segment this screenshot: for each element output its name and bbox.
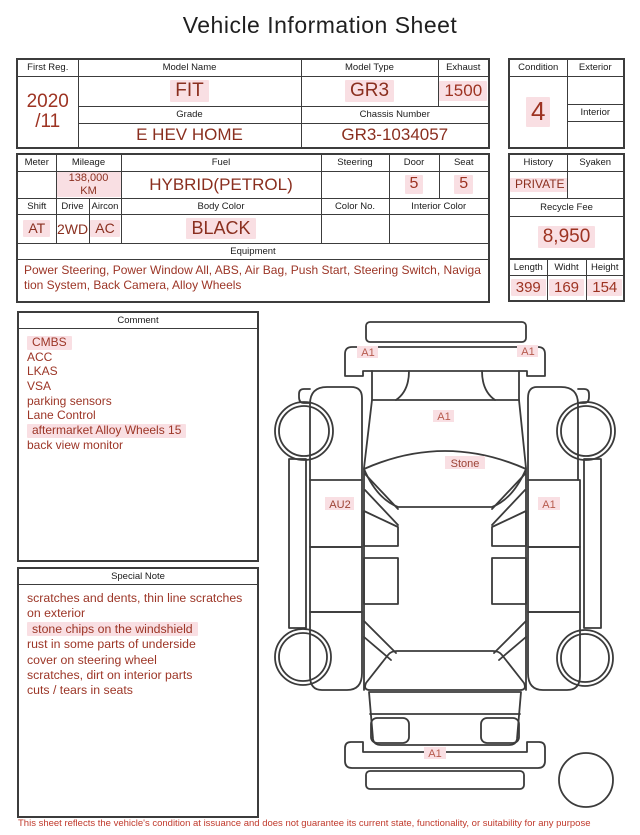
front-door-left	[310, 480, 362, 547]
aircon-value: AC	[89, 214, 121, 243]
wheel-rear-left-inner	[279, 633, 327, 681]
length-label: Length	[509, 259, 547, 275]
front-fender-right	[528, 387, 578, 480]
length-value: 399	[509, 275, 547, 301]
wheel-rear-left	[275, 629, 331, 685]
special-note-header: Special Note	[19, 569, 257, 585]
model-type-label: Model Type	[301, 59, 438, 76]
width-label: Widht	[547, 259, 586, 275]
headlight-left	[396, 371, 409, 400]
comment-item: Lane Control	[27, 408, 249, 423]
steering-value-empty	[321, 171, 389, 198]
exterior-label: Exterior	[567, 59, 624, 76]
rocker-right	[584, 459, 601, 628]
first-reg-year: 2020	[18, 92, 78, 112]
wheel-front-left	[275, 402, 333, 460]
front-door-right	[528, 480, 580, 547]
rear-door-right	[528, 547, 580, 612]
rear-door-left	[310, 547, 362, 612]
meter-value-empty	[17, 171, 56, 198]
fuel-label: Fuel	[121, 154, 321, 171]
c-pillar-left	[364, 621, 396, 660]
recycle-fee-value: 8,950	[509, 216, 624, 259]
special-note-item: scratches and dents, thin line scratches…	[27, 591, 249, 622]
wheel-front-right-inner	[561, 406, 611, 456]
comment-item: VSA	[27, 379, 249, 394]
special-note-item: cover on steering wheel	[27, 653, 249, 668]
hood	[372, 371, 519, 400]
width-value: 169	[547, 275, 586, 301]
body-color-value: BLACK	[121, 214, 321, 243]
grade-label: Grade	[78, 106, 301, 123]
vehicle-id-table: First Reg. Model Name Model Type Exhaust…	[16, 58, 490, 149]
mirror-left	[299, 389, 310, 403]
special-note-item: cuts / tears in seats	[27, 683, 249, 698]
color-no-value-empty	[321, 214, 389, 243]
taillight-left	[371, 718, 409, 743]
seat-value: 5	[439, 171, 489, 198]
wheel-front-left-inner	[279, 406, 329, 456]
syaken-value-empty	[567, 171, 624, 198]
model-type-value: GR3	[301, 76, 438, 106]
special-note-item: scratches, dirt on interior parts	[27, 668, 249, 683]
comment-box: Comment CMBS ACC LKAS VSA parking sensor…	[17, 311, 259, 562]
door-value: 5	[389, 171, 439, 198]
grade-value: E HEV HOME	[78, 123, 301, 148]
body-color-label: Body Color	[121, 198, 321, 214]
first-reg-value: 2020 /11	[17, 76, 78, 148]
special-note-item: stone chips on the windshield	[27, 622, 249, 637]
special-note-box: Special Note scratches and dents, thin l…	[17, 567, 259, 818]
equipment-value-cell: Power Steering, Power Window All, ABS, A…	[17, 259, 489, 302]
comment-item: CMBS	[27, 335, 249, 350]
interior-label: Interior	[567, 104, 624, 121]
first-reg-label: First Reg.	[17, 59, 78, 76]
c-pillar-right	[494, 621, 526, 660]
spec-table: Meter Mileage Fuel Steering Door Seat 13…	[16, 153, 490, 303]
color-no-label: Color No.	[321, 198, 389, 214]
rear-plate-strip	[366, 771, 524, 789]
rear-window-right	[492, 558, 526, 604]
model-name-label: Model Name	[78, 59, 301, 76]
comment-item: ACC	[27, 350, 249, 365]
first-reg-month: /11	[18, 112, 78, 132]
shift-label: Shift	[17, 198, 56, 214]
meter-label: Meter	[17, 154, 56, 171]
condition-value: 4	[509, 76, 567, 148]
interior-color-value-empty	[389, 214, 489, 243]
aircon-label: Aircon	[89, 198, 121, 214]
front-fender-left	[310, 387, 362, 480]
comment-item: back view monitor	[27, 438, 249, 453]
equipment-value: Power Steering, Power Window All, ABS, A…	[18, 260, 488, 297]
syaken-label: Syaken	[567, 154, 624, 171]
front-window-left	[364, 511, 398, 546]
disclaimer-text: This sheet reflects the vehicle's condit…	[18, 818, 633, 829]
taillight-right	[481, 718, 519, 743]
equipment-label: Equipment	[17, 243, 489, 259]
steering-label: Steering	[321, 154, 389, 171]
wheel-rear-right	[557, 630, 613, 686]
damage-label-rear: A1	[428, 748, 441, 760]
door-label: Door	[389, 154, 439, 171]
history-value: PRIVATE	[509, 171, 567, 198]
damage-label-windshield: Stone	[451, 458, 480, 470]
exhaust-label: Exhaust	[438, 59, 489, 76]
comment-item: parking sensors	[27, 394, 249, 409]
fuel-value: HYBRID(PETROL)	[121, 171, 321, 198]
comment-body: CMBS ACC LKAS VSA parking sensors Lane C…	[19, 329, 257, 458]
comment-header: Comment	[19, 313, 257, 329]
condition-label: Condition	[509, 59, 567, 76]
mileage-label: Mileage	[56, 154, 121, 171]
exterior-value-empty	[567, 76, 624, 104]
mileage-value: 138,000 KM	[56, 171, 121, 198]
dimensions-table: Length Widht Height 399 169 154	[508, 258, 625, 302]
model-name-value: FIT	[78, 76, 301, 106]
height-value: 154	[586, 275, 624, 301]
damage-label-front-right: A1	[521, 346, 534, 358]
recycle-fee-label: Recycle Fee	[509, 198, 624, 216]
vehicle-information-sheet: Vehicle Information Sheet First Reg. Mod…	[0, 0, 640, 835]
spare-tire	[559, 753, 613, 807]
seat-label: Seat	[439, 154, 489, 171]
car-damage-diagram: A1 A1 A1 Stone AU2 A1 A1	[272, 312, 638, 814]
wheel-rear-right-inner	[561, 634, 609, 682]
drive-value: 2WD	[56, 214, 89, 243]
mirror-right	[578, 389, 589, 403]
special-note-body: scratches and dents, thin line scratches…	[19, 585, 257, 705]
height-label: Height	[586, 259, 624, 275]
damage-label-hood: A1	[437, 411, 450, 423]
interior-color-label: Interior Color	[389, 198, 489, 214]
rear-fender-left	[310, 612, 362, 690]
drive-label: Drive	[56, 198, 89, 214]
comment-item: aftermarket Alloy Wheels 15	[27, 423, 249, 438]
damage-label-front-left: A1	[361, 347, 374, 359]
headlight-right	[482, 371, 495, 400]
rocker-left	[289, 459, 306, 628]
front-grille-strip	[366, 322, 526, 342]
front-window-right	[492, 511, 526, 546]
comment-item: LKAS	[27, 364, 249, 379]
interior-value-empty	[567, 121, 624, 148]
exhaust-value: 1500	[438, 76, 489, 106]
history-label: History	[509, 154, 567, 171]
history-table: History Syaken PRIVATE Recycle Fee 8,950	[508, 153, 625, 260]
shift-value: AT	[17, 214, 56, 243]
rear-glass	[365, 651, 525, 690]
rear-window-left	[364, 558, 398, 604]
damage-label-side-right: A1	[542, 499, 555, 511]
chassis-label: Chassis Number	[301, 106, 489, 123]
special-note-item: rust in some parts of underside	[27, 637, 249, 652]
damage-label-side-left: AU2	[329, 499, 350, 511]
wheel-front-right	[557, 402, 615, 460]
page-title: Vehicle Information Sheet	[0, 12, 640, 39]
condition-table: Condition Exterior 4 Interior	[508, 58, 625, 149]
chassis-value: GR3-1034057	[301, 123, 489, 148]
